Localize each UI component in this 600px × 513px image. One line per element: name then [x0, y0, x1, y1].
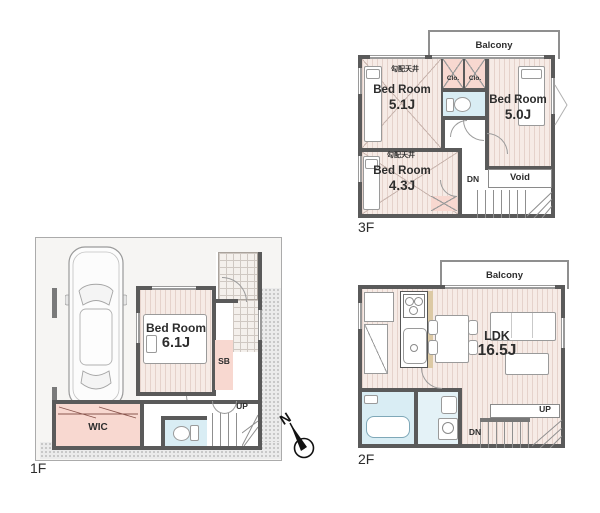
- window: [445, 285, 555, 289]
- floorplan-canvas: Balcony Clo. Clo.: [0, 0, 600, 513]
- window: [370, 55, 425, 59]
- storage-box: [364, 292, 394, 322]
- window: [561, 318, 565, 348]
- bedroom-1f-size: 6.1J: [138, 336, 214, 351]
- stairs-down-label-2f: DN: [463, 428, 487, 437]
- stairs-1f: [212, 413, 242, 446]
- stair-winder-lines: [527, 190, 552, 218]
- bedroom-sw-name: Bed Room: [362, 165, 442, 177]
- floor-plan-2f: Balcony LDK 16.5J: [355, 258, 600, 473]
- stairs-down-label-3f: DN: [461, 175, 485, 184]
- burner-icon: [414, 297, 423, 306]
- window: [358, 303, 362, 329]
- faucet-icon: [410, 344, 418, 352]
- closet-right-label: Clo.: [465, 76, 485, 83]
- stairs-2f: [480, 422, 532, 448]
- wic-label: WIC: [56, 423, 140, 434]
- window: [358, 68, 362, 94]
- tall-cabinet: [364, 324, 388, 374]
- window-chevron-mark: [553, 83, 569, 127]
- balcony-2f-label: Balcony: [486, 271, 523, 281]
- bedroom-nw-name: Bed Room: [363, 84, 441, 96]
- closet-right-3f: [465, 59, 485, 88]
- window: [152, 286, 196, 290]
- window: [136, 313, 140, 343]
- bedroom-e-size: 5.0J: [485, 108, 551, 122]
- window: [432, 55, 544, 59]
- stairs-up-label-2f: UP: [533, 405, 557, 414]
- shoe-box-label: SB: [215, 357, 233, 366]
- burner-icon: [409, 306, 418, 315]
- toilet-bowl-icon: [173, 426, 190, 441]
- wash-sink-icon: [441, 396, 457, 414]
- bathtub-icon: [366, 416, 410, 438]
- stair-winder-lines: [242, 413, 258, 446]
- toilet-tank-icon: [190, 425, 199, 441]
- sofa-cushion-line: [532, 313, 533, 338]
- floor-2f-label: 2F: [358, 452, 374, 467]
- floor-3f-label: 3F: [358, 220, 374, 235]
- floor-plan-1f: Bed Room 6.1J SB WIC UP: [30, 235, 330, 485]
- bedroom-1f-name: Bed Room: [138, 322, 214, 335]
- gate-post: [52, 288, 57, 318]
- closet-sw-3f: [431, 196, 457, 211]
- chair-icon: [428, 340, 438, 355]
- bedroom-sw-size: 4.3J: [362, 179, 442, 193]
- chair-icon: [428, 320, 438, 335]
- car-icon: [65, 243, 127, 411]
- toilet-tank-icon: [446, 98, 454, 112]
- closet-left-3f: [443, 59, 463, 88]
- ldk-size: 16.5J: [462, 343, 532, 359]
- floor-1f-label: 1F: [30, 461, 46, 476]
- bedroom-nw-size: 5.1J: [363, 98, 441, 112]
- compass-icon: N: [268, 403, 330, 465]
- stair-winder-lines: [532, 418, 562, 448]
- toilet-bowl-icon: [454, 97, 471, 112]
- sloped-ceiling-label-nw: 勾配天井: [375, 66, 435, 73]
- bath-counter-icon: [364, 395, 378, 404]
- bedroom-e-name: Bed Room: [485, 94, 551, 106]
- sloped-ceiling-label-sw: 勾配天井: [371, 152, 431, 159]
- closet-left-label: Clo.: [443, 76, 463, 83]
- washer-drum-icon: [442, 422, 454, 434]
- window: [258, 310, 262, 340]
- balcony-3f-label: Balcony: [476, 41, 513, 51]
- floor-plan-3f: Balcony Clo. Clo.: [355, 28, 600, 248]
- pillow-icon: [521, 69, 542, 79]
- wall: [140, 404, 144, 446]
- entrance-tile: [233, 300, 258, 352]
- wic-hanger-rod: [56, 405, 140, 421]
- burner-icon: [405, 297, 414, 306]
- stairs-3f: [477, 190, 527, 218]
- void-label: Void: [488, 173, 552, 183]
